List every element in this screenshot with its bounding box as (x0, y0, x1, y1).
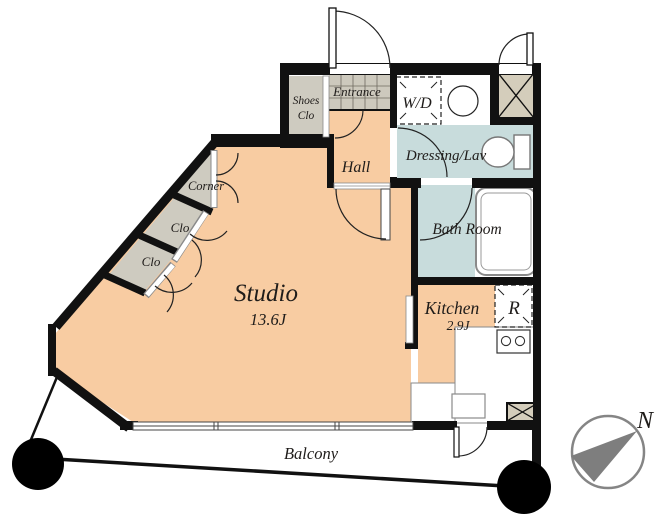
entrance-label: Entrance (332, 84, 381, 99)
refrigerator-label: R (507, 298, 520, 319)
compass: N (571, 408, 655, 488)
hall-studio-door-leaf (381, 189, 390, 240)
entrance-door-arc (333, 11, 390, 68)
kitchen-label: Kitchen (424, 298, 480, 318)
balcony-door-leaf (454, 427, 459, 457)
kitchen-wall-cabinet (406, 296, 413, 343)
shoes-closet-label-line1: Shoes (293, 95, 320, 107)
balcony-door-arc (458, 427, 487, 456)
floor-plan-page: N Studio 13.6J Kitchen 2.9J Bath Room Dr… (0, 0, 667, 525)
closet-upper-label: Clo (171, 220, 190, 235)
entrance-door-leaf (329, 8, 336, 68)
shoes-closet-door (323, 76, 329, 137)
studio-label: Studio (234, 280, 298, 307)
kitchen-counter-bottom (411, 383, 455, 423)
hall-studio-threshold (334, 183, 390, 189)
balcony-label: Balcony (284, 444, 339, 463)
kitchen-size-label: 2.9J (447, 318, 471, 333)
hall-label: Hall (341, 159, 371, 176)
corner-closet-label: Corner (188, 179, 224, 193)
service-door-arc (499, 34, 530, 65)
balcony-window (133, 422, 413, 430)
shoes-closet-label-line2: Clo (298, 110, 315, 122)
column-pillar-right (497, 460, 551, 514)
dressing-label: Dressing/Lav (405, 148, 487, 164)
floor-plan-drawing: N Studio 13.6J Kitchen 2.9J Bath Room Dr… (0, 0, 667, 525)
studio-size-label: 13.6J (250, 310, 287, 329)
column-pillar-left (12, 438, 64, 490)
north-label: N (636, 408, 655, 434)
kitchen-floor-lower (418, 327, 455, 384)
toilet-icon (482, 135, 530, 169)
balcony-left-boundary (30, 377, 57, 442)
washer-dryer-label: W/D (402, 95, 432, 112)
pipe-shaft-top-icon (498, 73, 534, 118)
service-door-leaf (527, 33, 533, 65)
kitchen-sink (452, 394, 485, 418)
washing-machine-icon (448, 86, 478, 116)
entrance-doorway-gap (330, 64, 390, 74)
closet-lower-label: Clo (142, 254, 161, 269)
balcony-bottom-boundary (55, 459, 505, 486)
bathroom-label: Bath Room (432, 221, 501, 238)
stove-icon (497, 330, 530, 353)
